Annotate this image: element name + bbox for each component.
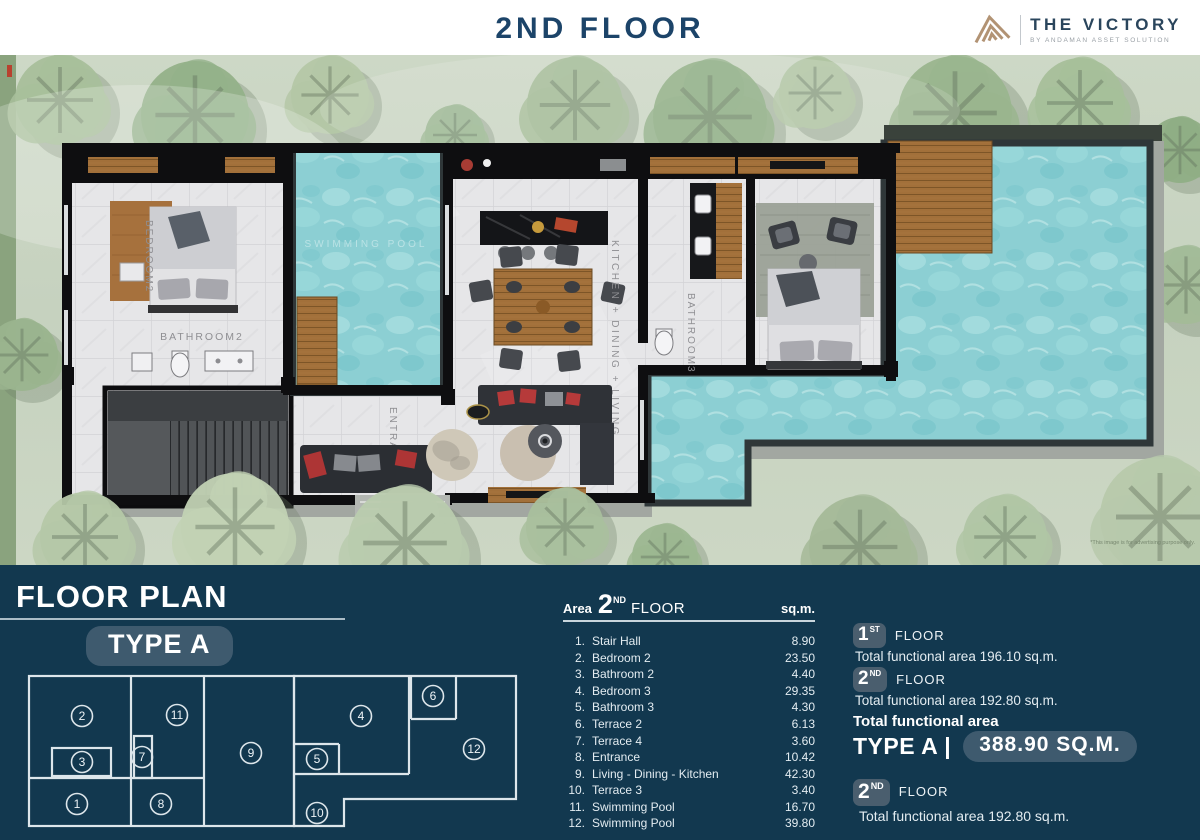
title-underline	[0, 618, 345, 620]
total-area-row: TYPE A | 388.90 SQ.M.	[853, 731, 1137, 762]
room-schematic-diagram: 1 2 3 4 5 6 7 8 9 10 11 12	[24, 671, 522, 835]
bathroom3-label: BATHROOM3	[685, 293, 696, 374]
brand-chevron-icon	[971, 10, 1011, 49]
first-floor-badge: 1ST	[853, 623, 886, 648]
area-table: Area 2 ND FLOOR sq.m. 1.Stair Hall8.90 2…	[563, 593, 815, 832]
room-number-9: 9	[248, 746, 255, 760]
floor-word: FLOOR	[631, 600, 685, 617]
room-number-2: 2	[79, 709, 86, 723]
room-number-7: 7	[139, 750, 146, 764]
room-number-12: 12	[467, 742, 481, 756]
table-row: 9.Living - Dining - Kitchen42.30	[563, 765, 815, 782]
area-table-header: Area 2 ND FLOOR sq.m.	[563, 593, 815, 622]
room-number-3: 3	[79, 755, 86, 769]
brand-name: THE VICTORY	[1030, 15, 1182, 35]
room-number-5: 5	[314, 752, 321, 766]
room-number-4: 4	[358, 709, 365, 723]
table-row: 10.Terrace 33.40	[563, 782, 815, 799]
bedroom2-furniture: BEDROOM2	[110, 201, 238, 313]
floor-number: 2	[598, 593, 613, 615]
brand-text: THE VICTORY BY ANDAMAN ASSET SOLUTION	[1030, 15, 1182, 44]
room-number-8: 8	[158, 797, 165, 811]
room-number-1: 1	[74, 797, 81, 811]
brand-divider	[1020, 15, 1021, 45]
table-row: 12.Swimming Pool39.80	[563, 815, 815, 832]
disclaimer-text: *This image is for advertising purpose o…	[1090, 540, 1195, 546]
bedroom3-furniture	[756, 203, 874, 369]
brand-tagline: BY ANDAMAN ASSET SOLUTION	[1030, 37, 1182, 44]
table-row: 6.Terrace 26.13	[563, 716, 815, 733]
table-row: 11.Swimming Pool16.70	[563, 798, 815, 815]
table-row: 5.Bathroom 34.30	[563, 699, 815, 716]
first-floor-heading: 1ST FLOOR	[853, 623, 945, 648]
page: 2ND FLOOR THE VICTORY BY ANDAMAN ASSET S…	[0, 0, 1200, 840]
header: 2ND FLOOR THE VICTORY BY ANDAMAN ASSET S…	[0, 0, 1200, 55]
total-area-value-pill: 388.90 SQ.M.	[963, 731, 1137, 762]
area-table-rows: 1.Stair Hall8.90 2.Bedroom 223.50 3.Bath…	[563, 633, 815, 832]
table-row: 4.Bedroom 329.35	[563, 683, 815, 700]
area-label: Area	[563, 601, 592, 616]
second-floor-heading-repeat: 2ND FLOOR	[853, 779, 948, 806]
swimming-pool-left: SWIMMING POOL	[293, 148, 443, 393]
second-floor-badge-repeat: 2ND	[853, 779, 890, 806]
unit-label: sq.m.	[781, 601, 815, 616]
brand-logo: THE VICTORY BY ANDAMAN ASSET SOLUTION	[971, 10, 1182, 49]
room-number-10: 10	[310, 806, 324, 820]
bathroom2-label: BATHROOM2	[160, 331, 244, 343]
first-floor-total: Total functional area 196.10 sq.m.	[855, 649, 1058, 664]
swimming-pool-label: SWIMMING POOL	[305, 239, 428, 250]
room-number-11: 11	[171, 708, 184, 722]
second-floor-total: Total functional area 192.80 sq.m.	[855, 693, 1058, 708]
floor-ordinal: ND	[613, 595, 626, 605]
bedroom2-label: BEDROOM2	[143, 220, 154, 293]
table-row: 3.Bathroom 24.40	[563, 666, 815, 683]
second-floor-total-repeat: Total functional area 192.80 sq.m.	[859, 808, 1069, 824]
second-floor-badge: 2ND	[853, 667, 887, 692]
table-row: 2.Bedroom 223.50	[563, 650, 815, 667]
type-a-total-label: TYPE A |	[853, 733, 951, 760]
floor-plan-rendering: SWIMMING POOL	[0, 55, 1200, 565]
table-row: 7.Terrace 43.60	[563, 732, 815, 749]
info-panel: FLOOR PLAN TYPE A	[0, 565, 1200, 840]
second-floor-heading: 2ND FLOOR	[853, 667, 946, 692]
floor-plan-title: FLOOR PLAN	[16, 579, 228, 615]
table-row: 1.Stair Hall8.90	[563, 633, 815, 650]
type-a-badge: TYPE A	[86, 626, 233, 666]
table-row: 8.Entrance10.42	[563, 749, 815, 766]
total-functional-area-label: Total functional area	[853, 713, 999, 730]
room-number-6: 6	[430, 689, 437, 703]
